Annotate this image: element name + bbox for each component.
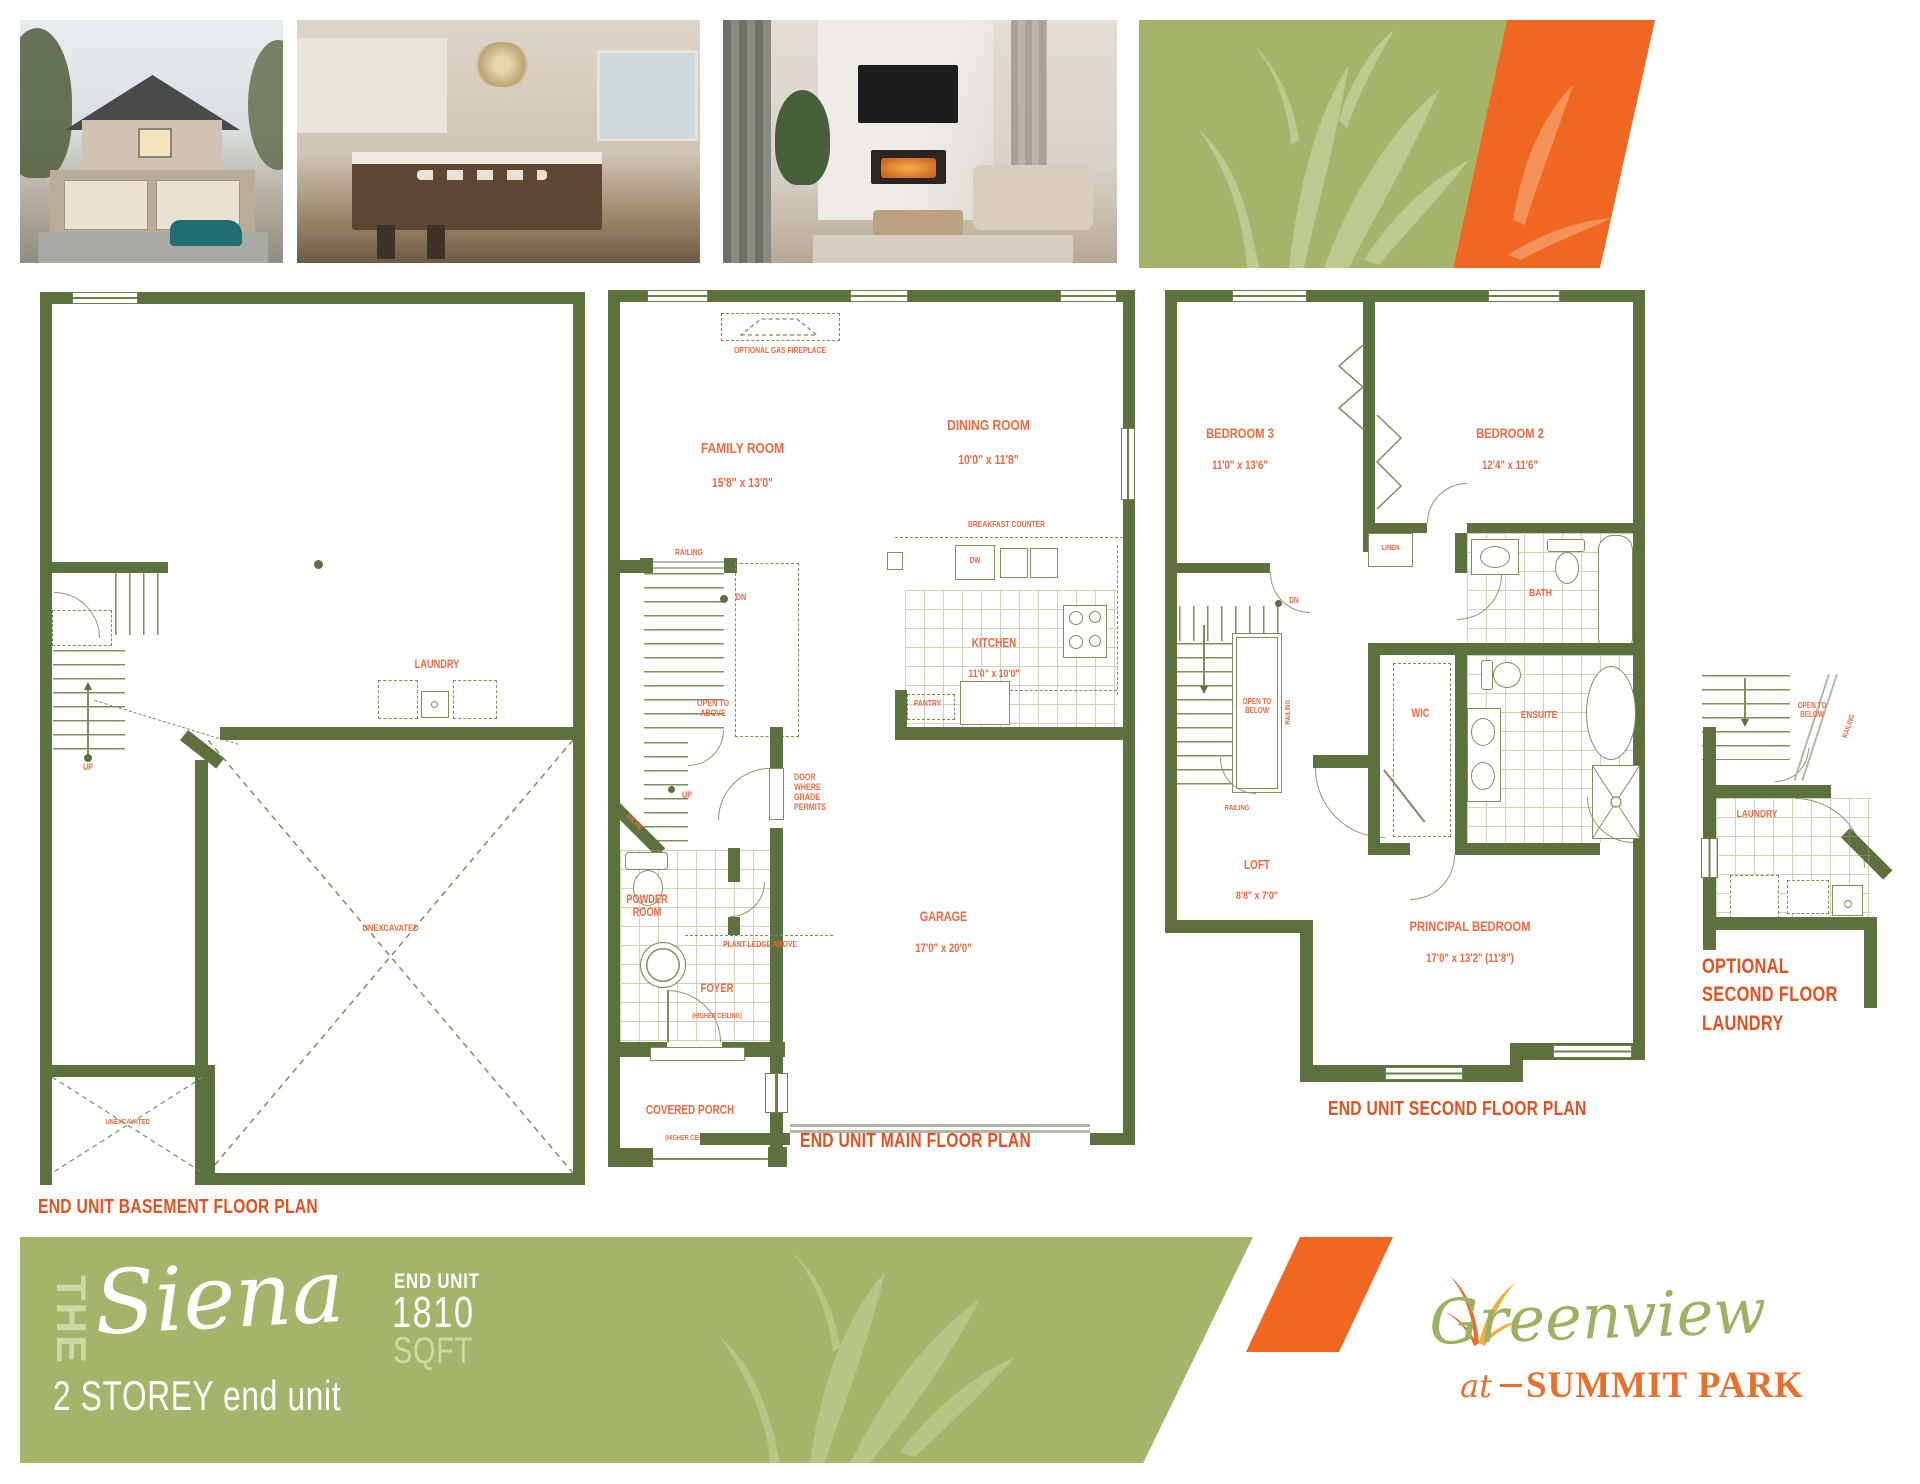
fireplace-label: OPTIONAL GAS FIREPLACE xyxy=(727,346,833,356)
wall xyxy=(195,1173,585,1185)
railing-post xyxy=(640,558,653,573)
garage-door-leaf xyxy=(769,768,784,820)
room-dims: 8'8" x 7'0" xyxy=(1225,890,1289,902)
wall xyxy=(895,727,1123,740)
bedroom3-label: BEDROOM 3 11'0" x 13'6" xyxy=(1192,408,1288,491)
washer-icon xyxy=(1730,875,1779,919)
room-name: PRINCIPAL BEDROOM xyxy=(1402,919,1538,935)
wall xyxy=(1313,755,1370,768)
room-name: FAMILY ROOM xyxy=(693,441,793,458)
railing-bar xyxy=(1801,674,1838,781)
railing-bar xyxy=(653,561,724,563)
stair-landing xyxy=(52,610,112,646)
bath-label: BATH xyxy=(1519,588,1563,600)
plates-shape xyxy=(417,170,547,180)
window xyxy=(850,290,908,302)
unexcavated-x xyxy=(208,740,573,1173)
window xyxy=(1385,1067,1463,1080)
railing-bar xyxy=(653,567,724,569)
second-caption: END UNIT SECOND FLOOR PLAN xyxy=(1328,1096,1587,1123)
loft-label: LOFT 8'8" x 7'0" xyxy=(1225,840,1289,920)
main-caption: END UNIT MAIN FLOOR PLAN xyxy=(800,1128,1031,1155)
up-label: UP xyxy=(74,762,103,772)
window xyxy=(1232,290,1307,302)
room-dims: 17'0" x 13'2" (11'8") xyxy=(1402,952,1538,965)
open-to-above-label: OPEN TO ABOVE xyxy=(693,698,733,718)
living-room-photo xyxy=(723,20,1117,263)
basement-floor-plan: UP LAUNDRY UNEXCAVATED UNEXCAVATED xyxy=(40,292,585,1185)
footer-storey: 2 STOREY end unit xyxy=(53,1372,341,1420)
powder-room-label: POWDER ROOM xyxy=(622,894,672,920)
tree-shape xyxy=(20,28,72,178)
plant-ledge-label: PLANT LEDGE ABOVE xyxy=(701,940,819,950)
burner-icon xyxy=(1069,611,1083,625)
stair-arrow xyxy=(1203,625,1205,687)
toilet-icon xyxy=(625,852,668,870)
pantry-label: PANTRY xyxy=(906,699,950,709)
dn-marker xyxy=(1275,600,1282,607)
plant-ledge-dash xyxy=(685,935,833,936)
room-name: DINING ROOM xyxy=(939,418,1039,435)
linen-label: LINEN xyxy=(1373,544,1409,552)
room-name: FOYER xyxy=(691,982,744,995)
tree-shape xyxy=(248,40,283,170)
railing-label: RAILING xyxy=(666,548,712,558)
door-arc xyxy=(718,768,770,820)
unexcavated-label: UNEXCAVATED xyxy=(325,924,457,935)
wall xyxy=(1633,290,1645,1060)
drain-icon xyxy=(1844,900,1852,908)
door-arc xyxy=(1410,855,1455,900)
garage-label: GARAGE 17'0" x 20'0" xyxy=(906,891,982,973)
cabinets-shape xyxy=(297,38,447,133)
footer-sqft-label: SQFT xyxy=(393,1330,473,1372)
arrow-up-icon xyxy=(84,682,92,690)
kitchen-dash xyxy=(1010,690,1117,691)
open-to-below-label: OPEN TO BELOW xyxy=(1238,698,1276,716)
open-to-below-label: OPEN TO BELOW xyxy=(1793,702,1831,720)
brochure-page: UP LAUNDRY UNEXCAVATED UNEXCAVATED END U… xyxy=(0,0,1920,1484)
wall xyxy=(40,1065,215,1077)
room-name: BEDROOM 3 xyxy=(1192,426,1288,442)
breakfast-counter-label: BREAKFAST COUNTER xyxy=(957,520,1057,530)
top-banner-green xyxy=(1139,20,1507,268)
room-dims: 11'0" x 10'0" xyxy=(962,668,1026,680)
porch-step xyxy=(650,1047,745,1061)
footer-model-name: Siena xyxy=(92,1239,347,1355)
basement-caption: END UNIT BASEMENT FLOOR PLAN xyxy=(38,1194,318,1221)
wall xyxy=(1165,563,1270,573)
toilet-icon xyxy=(1481,660,1493,690)
washer-icon xyxy=(378,680,418,719)
plant-shape xyxy=(775,90,830,185)
family-room-label: FAMILY ROOM 15'8" x 13'0" xyxy=(693,423,793,508)
curtain-shape xyxy=(723,20,771,263)
laundry-label: LAUNDRY xyxy=(399,659,474,672)
toilet-icon xyxy=(1547,539,1585,552)
pedestal-sink-icon xyxy=(640,942,686,988)
wall xyxy=(770,828,783,1167)
burner-icon xyxy=(1069,635,1083,649)
wall xyxy=(1368,843,1410,855)
window xyxy=(72,292,138,304)
soaker-tub-icon xyxy=(1586,666,1636,760)
dryer-icon xyxy=(453,680,497,719)
toilet-icon xyxy=(1555,552,1579,584)
exterior-photo xyxy=(20,20,283,263)
tv-shape xyxy=(858,65,958,123)
room-name: GARAGE xyxy=(906,909,982,924)
laundry-label: LAUNDRY xyxy=(1729,809,1785,821)
room-name: LOFT xyxy=(1225,858,1289,872)
ensuite-label: ENSUITE xyxy=(1507,710,1571,722)
door-arc xyxy=(1427,483,1467,523)
wall xyxy=(1467,523,1640,533)
covered-porch-label: COVERED PORCH (HIGHER CEILING) xyxy=(642,1085,738,1161)
door-where-grade-label: DOOR WHERE GRADE PERMITS xyxy=(794,772,842,812)
toilet-icon xyxy=(1493,662,1521,688)
sink-icon xyxy=(1480,546,1510,568)
porch-edge xyxy=(653,1158,768,1160)
sink-icon xyxy=(1471,762,1495,790)
stool-shape xyxy=(377,225,395,259)
wall xyxy=(220,727,575,740)
leaf-motif xyxy=(1139,20,1507,268)
logo-dash xyxy=(1500,1384,1522,1387)
wall xyxy=(1165,920,1313,933)
arrow-down-icon xyxy=(1200,686,1208,694)
arrow-down-icon xyxy=(1741,719,1749,727)
wall xyxy=(40,292,52,1185)
fireplace-icon xyxy=(729,315,829,337)
room-dims: 11'0" x 13'6" xyxy=(1192,459,1288,472)
wall xyxy=(1455,655,1467,855)
wall xyxy=(728,848,740,882)
drain-icon xyxy=(431,701,438,708)
footer-banner-orange-stripe xyxy=(1246,1237,1393,1352)
kitchen-photo xyxy=(297,20,700,263)
room-dims: 17'0" x 20'0" xyxy=(906,942,982,955)
wall xyxy=(203,1065,215,1185)
room-dims: 10'0" x 11'8" xyxy=(939,453,1039,468)
wall xyxy=(608,290,620,1167)
room-dims: 15'8" x 13'0" xyxy=(693,476,793,491)
window xyxy=(1553,1045,1632,1058)
up-marker xyxy=(668,786,675,793)
stairs xyxy=(115,573,163,635)
logo-greenview: Greenview xyxy=(1428,1274,1767,1359)
logo-tagline: at SUMMIT PARK xyxy=(1460,1364,1804,1407)
dining-room-label: DINING ROOM 10'0" x 11'8" xyxy=(939,400,1039,485)
room-name: BEDROOM 2 xyxy=(1462,426,1558,442)
window xyxy=(1121,428,1135,500)
wall xyxy=(1864,930,1877,1008)
second-floor-plan: BEDROOM 3 11'0" x 13'6" BEDROOM 2 12'4" … xyxy=(1165,290,1645,1082)
garage-door-shape xyxy=(64,180,148,230)
garage-door-line xyxy=(790,1124,1090,1127)
dn-marker xyxy=(720,595,728,603)
wall xyxy=(1455,533,1467,573)
fire-glow-shape xyxy=(881,158,936,178)
window xyxy=(1488,290,1560,302)
kitchen-dash xyxy=(1117,545,1118,695)
bathtub-icon xyxy=(1598,535,1633,653)
wall xyxy=(1703,917,1877,930)
dn-label: DN xyxy=(1284,597,1303,606)
wall xyxy=(1368,643,1645,655)
fridge-icon xyxy=(960,681,1010,725)
wall xyxy=(1455,843,1467,855)
bifold-closet-icon xyxy=(1375,415,1403,510)
sink-icon xyxy=(1030,548,1058,578)
open-to-above-zone xyxy=(735,563,799,737)
wall xyxy=(1368,643,1380,855)
wic-label: WIC xyxy=(1391,708,1451,721)
wall xyxy=(1123,290,1135,1145)
chandelier-shape xyxy=(472,42,532,87)
sink-icon xyxy=(1000,548,1028,578)
curtain-shape xyxy=(1011,20,1047,170)
wall xyxy=(1090,1133,1135,1145)
up-label: UP xyxy=(677,790,698,800)
house-window-shape xyxy=(138,128,172,158)
bedroom2-label: BEDROOM 2 12'4" x 11'6" xyxy=(1462,408,1558,491)
principal-bedroom-label: PRINCIPAL BEDROOM 17'0" x 13'2" (11'8") xyxy=(1402,901,1538,984)
window xyxy=(1060,290,1117,302)
sofa-shape xyxy=(973,165,1093,230)
railing-label-vertical: RAILING xyxy=(1838,704,1859,748)
leaf-motif xyxy=(670,1237,1090,1463)
window xyxy=(647,290,708,302)
sink-icon xyxy=(1471,718,1495,746)
wall xyxy=(770,727,783,768)
main-floor-plan: OPTIONAL GAS FIREPLACE FAMILY ROOM 15'8"… xyxy=(608,290,1135,1167)
unexcavated-small-label: UNEXCAVATED xyxy=(86,1118,170,1126)
optional-laundry-caption: OPTIONAL SECOND FLOOR LAUNDRY xyxy=(1702,953,1838,1038)
window-shape xyxy=(597,50,698,141)
dw-label: DW xyxy=(963,557,987,566)
burner-icon xyxy=(1089,611,1101,623)
wall xyxy=(1368,523,1427,533)
porch-post xyxy=(608,1148,653,1167)
wall xyxy=(40,562,168,573)
car-shape xyxy=(170,220,242,246)
cabinet-end xyxy=(887,552,903,570)
room-dims: 12'4" x 11'6" xyxy=(1462,459,1558,472)
rug-shape xyxy=(813,235,1073,263)
counter-dash xyxy=(895,537,1123,538)
wall xyxy=(700,1133,790,1145)
railing-label-vertical: RAILING xyxy=(1284,691,1292,734)
logo-summit-park: SUMMIT PARK xyxy=(1526,1365,1804,1406)
wall xyxy=(1716,785,1831,798)
stair-arrow xyxy=(87,690,89,756)
side-light-window xyxy=(765,1073,788,1113)
wall xyxy=(1165,290,1177,933)
burner-icon xyxy=(1089,635,1101,647)
logo-at: at xyxy=(1460,1367,1492,1405)
wall xyxy=(1467,843,1600,855)
greenview-logo: Greenview at SUMMIT PARK xyxy=(1420,1260,1890,1430)
dryer-icon xyxy=(1787,880,1829,914)
footer-the: THE xyxy=(49,1274,93,1366)
stair-arrow xyxy=(1744,678,1746,720)
room-name: KITCHEN xyxy=(962,636,1026,650)
porch-post xyxy=(768,1147,787,1167)
up-marker xyxy=(84,754,92,762)
pot-light xyxy=(314,560,323,569)
closet-rod xyxy=(1393,663,1451,837)
wall xyxy=(1633,843,1645,855)
wall xyxy=(1300,920,1313,1065)
railing-label: RAILING xyxy=(1213,804,1261,812)
counter-shape xyxy=(352,152,602,164)
stair-turn xyxy=(688,730,724,766)
wall xyxy=(728,917,740,935)
bifold-closet-icon xyxy=(1337,345,1365,430)
room-name: COVERED PORCH xyxy=(642,1103,738,1117)
railing-bar xyxy=(1793,674,1830,781)
stool-shape xyxy=(427,225,445,259)
